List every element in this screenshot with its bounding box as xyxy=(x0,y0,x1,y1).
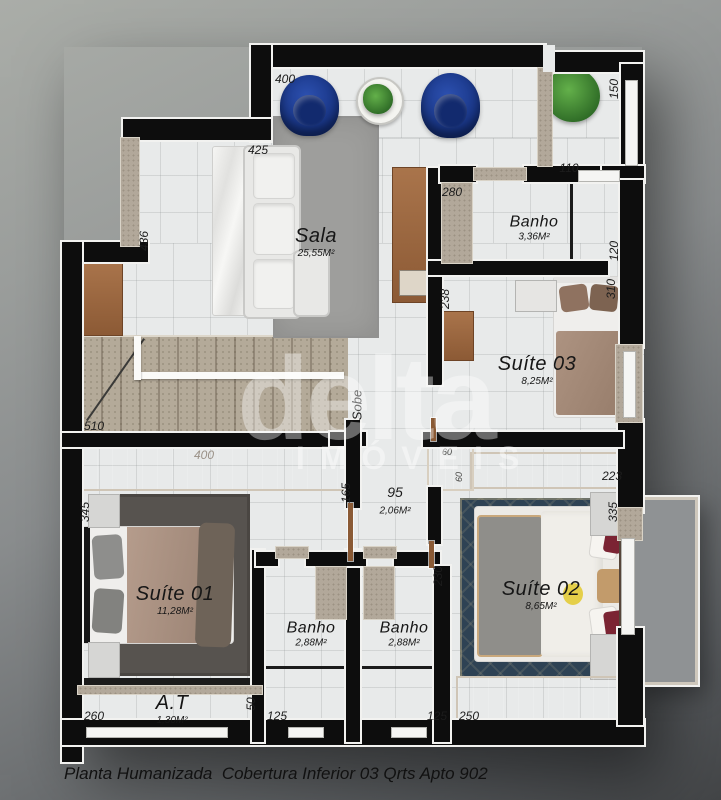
room-area: 2,88M² xyxy=(380,638,429,649)
room-name: Suíte 01 xyxy=(136,583,215,606)
room-name: Banho xyxy=(380,620,429,638)
wardrobe-suite02-bottom xyxy=(456,676,632,726)
wall-segment xyxy=(423,432,623,447)
dimension-label-suite03-left: 238 xyxy=(438,289,452,309)
room-label-banho2: Banho 2,88M² xyxy=(380,620,429,649)
dimension-label-banho-sup-right: 120 xyxy=(607,241,621,261)
dimension-label-banho2-bottom: 125 xyxy=(427,709,447,723)
armchair xyxy=(421,73,480,138)
stair-railing xyxy=(134,336,141,380)
room-area: 1,30M² xyxy=(156,715,189,726)
room-name: Suíte 03 xyxy=(498,353,577,376)
sofa-cushion xyxy=(253,203,295,255)
dimension-label-closet-altura: 60 xyxy=(454,472,464,482)
plant-icon xyxy=(546,68,600,122)
room-label-banho-superior: Banho 3,36M² xyxy=(510,214,559,243)
armchair-seat xyxy=(434,94,467,128)
dimension-label-suite02-door: 230 xyxy=(431,566,445,586)
room-area: 3,36M² xyxy=(510,232,559,243)
banho2-counter xyxy=(364,567,394,619)
floor-plan: Sala 25,55M² Banho 3,36M² Suíte 03 8,25M… xyxy=(0,0,721,800)
decor-book xyxy=(399,270,427,296)
armchair-seat xyxy=(293,95,326,127)
suite03-desk xyxy=(442,311,474,361)
window xyxy=(288,727,324,738)
dimension-label-guarda-roupa: 400 xyxy=(194,448,214,462)
dimension-label-banho1-bottom: 125 xyxy=(267,709,287,723)
staircase xyxy=(82,335,348,437)
plant-icon xyxy=(363,84,393,114)
room-label-suite03: Suíte 03 8,25M² xyxy=(498,353,577,387)
dimension-label-suite01-left: 345 xyxy=(78,502,92,522)
room-label-area-tecnica: A.T 1,30M² xyxy=(156,692,189,726)
sofa-cushion xyxy=(253,153,295,199)
room-area: 8,65M² xyxy=(502,601,581,612)
bed-pillow xyxy=(92,588,125,634)
wall-segment xyxy=(306,552,366,566)
room-name: Suíte 02 xyxy=(502,578,581,601)
low-wall-granite xyxy=(276,547,308,558)
window xyxy=(86,727,228,738)
room-label-suite01: Suíte 01 11,28M² xyxy=(136,583,215,617)
low-wall-granite xyxy=(364,547,396,558)
sofa-chaise xyxy=(293,250,330,317)
room-label-sala: Sala 25,55M² xyxy=(295,225,337,259)
wall-segment xyxy=(62,433,354,447)
room-label-suite02: Suíte 02 8,65M² xyxy=(502,578,581,612)
door-leaf xyxy=(348,503,353,561)
partition-line xyxy=(570,184,573,262)
wall-segment xyxy=(252,550,264,742)
wall-segment xyxy=(253,45,545,67)
window xyxy=(625,80,638,166)
nightstand xyxy=(88,494,120,528)
dimension-label-escada: 510 xyxy=(84,419,104,433)
dimension-label-banho-sup-left: 280 xyxy=(442,185,462,199)
dimension-label-suite02-top: 223 xyxy=(602,469,622,483)
sala-desk xyxy=(83,261,123,336)
room-name: Banho xyxy=(287,620,336,638)
dimension-label-suite02-bottom: 250 xyxy=(459,709,479,723)
wall-segment xyxy=(618,628,643,725)
door-leaf xyxy=(429,541,434,568)
sofa-cushion xyxy=(253,259,295,309)
wall-segment xyxy=(440,166,476,182)
room-name: A.T xyxy=(156,692,189,715)
bed-pillow xyxy=(92,534,125,580)
dimension-label-suite01-bottom: 260 xyxy=(84,709,104,723)
window xyxy=(621,538,635,635)
window xyxy=(623,351,636,418)
floor-mid xyxy=(123,138,643,245)
low-wall-granite xyxy=(474,168,526,180)
dimension-label-suite03-right: 310 xyxy=(604,279,618,299)
low-wall-granite xyxy=(538,68,552,166)
room-name: Sala xyxy=(295,225,337,248)
banho1-counter xyxy=(316,567,346,619)
stairs-direction-label: Sobe xyxy=(350,390,365,420)
plan-title: Planta Humanizada Cobertura Inferior 03 … xyxy=(64,764,488,784)
window xyxy=(391,727,427,738)
dimension-label-sala-sofa: 425 xyxy=(248,143,268,157)
partition-line xyxy=(78,678,262,686)
dimension-label-sala-left: 436 xyxy=(137,231,151,251)
entrance-door-gap xyxy=(543,45,555,72)
nightstand xyxy=(88,642,120,678)
room-name: Banho xyxy=(510,214,559,232)
window xyxy=(578,170,620,182)
wall-segment xyxy=(256,552,278,566)
room-area: 11,28M² xyxy=(136,606,215,617)
room-area: 8,25M² xyxy=(498,376,577,387)
dimension-label-corredor: 95 xyxy=(387,484,403,500)
wall-segment xyxy=(428,261,608,275)
dimension-label-guarda-roupa-altura: 165 xyxy=(339,483,353,503)
low-wall-granite xyxy=(618,508,642,540)
stair-railing xyxy=(136,372,344,379)
dimension-label-banho-sup-top: 110 xyxy=(559,161,578,175)
corredor-area-label: 2,06M² xyxy=(379,506,410,517)
dimension-label-sala-top: 400 xyxy=(275,72,295,86)
room-label-banho1: Banho 2,88M² xyxy=(287,620,336,649)
nightstand xyxy=(515,280,557,312)
room-area: 25,55M² xyxy=(295,248,337,259)
low-wall-granite xyxy=(121,138,139,246)
partition-line xyxy=(360,666,440,669)
bed-headboard xyxy=(83,527,90,643)
wall-segment xyxy=(123,119,271,140)
partition-line xyxy=(264,666,346,669)
door-leaf xyxy=(431,418,436,441)
wardrobe-suite01 xyxy=(80,445,358,491)
wall-segment xyxy=(346,550,360,742)
dimension-label-closet-largura: 60 xyxy=(442,447,452,457)
room-area: 2,88M² xyxy=(287,638,336,649)
wall-segment xyxy=(428,487,441,544)
bed-pillow xyxy=(558,283,589,313)
wall-segment xyxy=(428,168,442,385)
dimension-label-at-height: 50 xyxy=(244,697,258,710)
dimension-label-hall-right: 150 xyxy=(607,79,621,99)
wall-segment xyxy=(620,180,643,347)
dimension-label-suite02-right: 335 xyxy=(606,502,620,522)
